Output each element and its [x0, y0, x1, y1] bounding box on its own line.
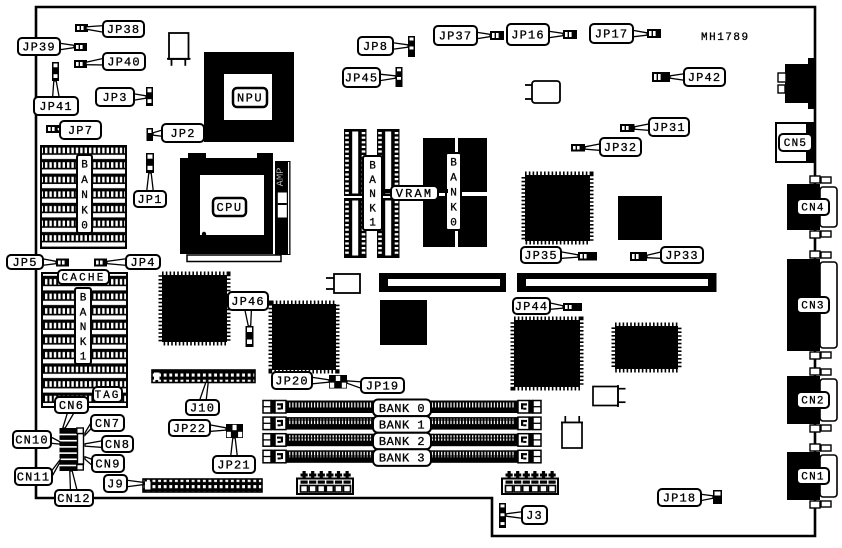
svg-text:B: B	[369, 161, 376, 173]
svg-text:JP40: JP40	[107, 56, 141, 70]
svg-text:JP7: JP7	[68, 124, 93, 138]
svg-text:JP20: JP20	[275, 375, 309, 389]
svg-text:K: K	[369, 204, 376, 216]
svg-text:1: 1	[369, 218, 376, 230]
svg-text:CN10: CN10	[15, 434, 49, 448]
svg-text:K: K	[450, 203, 457, 215]
svg-text:JP44: JP44	[515, 300, 549, 314]
svg-text:CN5: CN5	[784, 138, 807, 150]
svg-text:CACHE: CACHE	[61, 273, 105, 285]
svg-text:CN1: CN1	[801, 472, 824, 484]
svg-text:CN2: CN2	[801, 396, 824, 408]
svg-text:JP18: JP18	[663, 492, 697, 506]
svg-text:TAG: TAG	[95, 390, 121, 402]
svg-text:BANK 0: BANK 0	[379, 402, 425, 416]
svg-text:JP37: JP37	[439, 30, 473, 44]
svg-text:B: B	[450, 158, 457, 170]
svg-text:NPU: NPU	[237, 92, 263, 106]
svg-text:JP8: JP8	[363, 40, 388, 54]
svg-text:JP1: JP1	[137, 193, 162, 207]
svg-text:JP2: JP2	[170, 127, 195, 141]
svg-text:BANK 3: BANK 3	[379, 452, 425, 466]
svg-text:JP39: JP39	[22, 41, 56, 55]
svg-text:B: B	[80, 293, 87, 305]
svg-text:A: A	[81, 175, 88, 187]
svg-text:CN6: CN6	[59, 399, 84, 413]
svg-text:JP3: JP3	[102, 91, 127, 105]
svg-text:BANK 1: BANK 1	[379, 418, 425, 432]
svg-text:1: 1	[80, 352, 87, 364]
svg-text:JP4: JP4	[130, 256, 155, 270]
svg-text:N: N	[369, 189, 376, 201]
svg-text:JP35: JP35	[524, 249, 558, 263]
svg-text:0: 0	[450, 218, 457, 230]
svg-text:JP45: JP45	[345, 72, 379, 86]
svg-text:JP16: JP16	[511, 29, 545, 43]
svg-text:CN8: CN8	[105, 438, 130, 452]
svg-text:JP22: JP22	[173, 422, 207, 436]
svg-text:CN12: CN12	[57, 492, 91, 506]
svg-text:J3: J3	[526, 509, 543, 523]
svg-text:MH1789: MH1789	[701, 32, 750, 44]
svg-text:J10: J10	[190, 402, 215, 416]
svg-text:JP42: JP42	[688, 71, 722, 85]
svg-text:A: A	[80, 308, 87, 320]
svg-text:CN3: CN3	[801, 301, 824, 313]
svg-text:JP31: JP31	[652, 121, 686, 135]
svg-text:AMP: AMP	[275, 168, 287, 187]
svg-text:JP41: JP41	[39, 100, 73, 114]
svg-text:A: A	[369, 175, 376, 187]
svg-text:JP19: JP19	[366, 380, 400, 394]
svg-text:JP46: JP46	[231, 295, 265, 309]
svg-text:0: 0	[81, 221, 88, 233]
svg-text:JP21: JP21	[217, 459, 251, 473]
svg-text:JP38: JP38	[107, 23, 141, 37]
svg-text:CPU: CPU	[216, 201, 242, 215]
svg-text:K: K	[81, 206, 88, 218]
svg-text:JP32: JP32	[604, 141, 638, 155]
svg-text:B: B	[81, 160, 88, 172]
svg-text:N: N	[81, 190, 88, 202]
svg-text:CN9: CN9	[95, 458, 120, 472]
svg-text:JP5: JP5	[12, 256, 37, 270]
svg-text:A: A	[450, 173, 457, 185]
svg-text:N: N	[80, 322, 87, 334]
svg-text:J9: J9	[107, 478, 124, 492]
svg-text:BANK 2: BANK 2	[379, 435, 425, 449]
svg-text:N: N	[450, 188, 457, 200]
svg-text:CN4: CN4	[801, 203, 824, 215]
svg-text:K: K	[80, 337, 87, 349]
svg-text:JP17: JP17	[595, 28, 629, 42]
svg-text:CN7: CN7	[95, 417, 120, 431]
svg-text:CN11: CN11	[17, 471, 51, 485]
svg-text:VRAM: VRAM	[396, 187, 434, 201]
svg-text:JP33: JP33	[665, 249, 699, 263]
